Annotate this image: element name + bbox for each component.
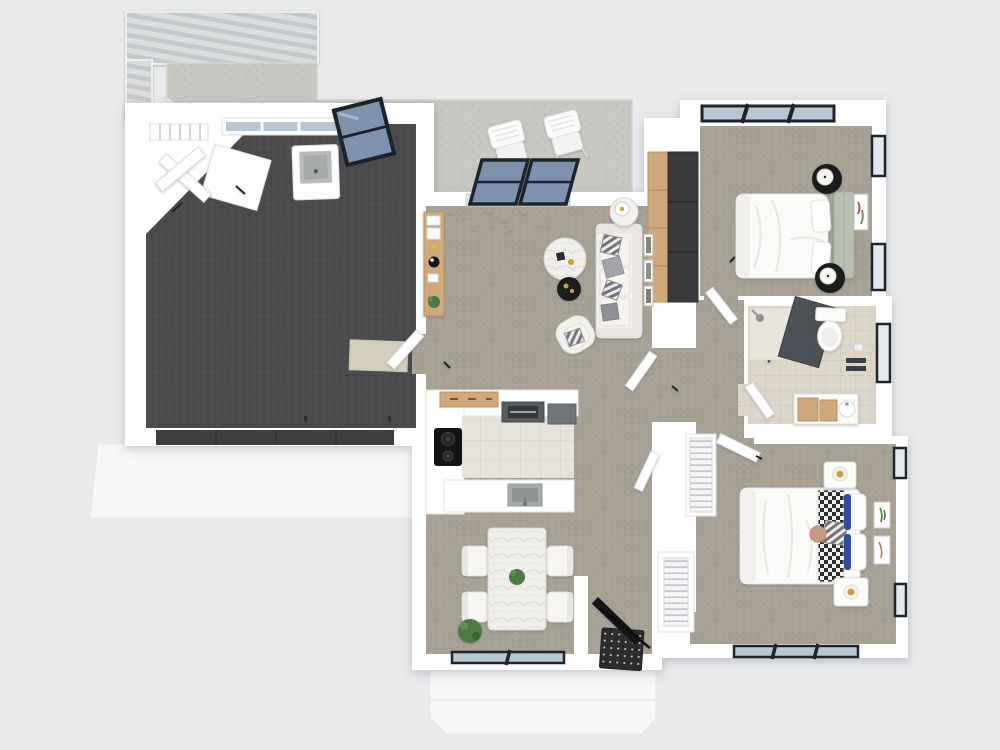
marble-coffee-table	[544, 238, 586, 280]
living-wall-art	[644, 234, 653, 306]
console-black-bowl	[429, 257, 440, 268]
floor-plant	[458, 619, 482, 643]
bed-1-pillow	[811, 199, 831, 232]
side-table-with-lamp	[610, 198, 638, 226]
dining-chair	[546, 592, 573, 622]
nightstand-white	[834, 578, 868, 606]
dining-chair	[462, 592, 489, 622]
driveway	[90, 444, 414, 518]
sofa-pillow	[600, 234, 621, 255]
kitchen	[426, 390, 578, 514]
nightstand-white	[824, 462, 856, 488]
linen-closet	[686, 434, 716, 516]
bedroom-1-wall-art	[854, 194, 868, 230]
garage-door	[156, 430, 394, 445]
floor-plan-svg	[0, 0, 1000, 750]
dining-chair	[462, 546, 489, 576]
entry-closet	[658, 552, 694, 632]
black-accent-table	[557, 277, 581, 301]
laundry-window-band	[222, 118, 340, 135]
console-decor-gold	[430, 244, 437, 249]
sofa-pillow	[601, 303, 619, 321]
nightstand-black	[812, 164, 842, 194]
bedroom-1-window-band	[702, 104, 834, 123]
sliding-glass-door	[466, 160, 578, 206]
kitchen-tile-floor	[462, 416, 574, 478]
coffee-table-book	[555, 251, 566, 262]
dining-chair	[546, 546, 573, 576]
vanity	[794, 394, 858, 424]
round-stool	[810, 526, 826, 542]
dining-table	[488, 528, 546, 630]
sofa-pillow	[602, 256, 624, 278]
floor-plan-render	[0, 0, 1000, 750]
bed-2-pillow-navy	[844, 534, 866, 570]
doormat	[599, 628, 644, 671]
cooktop	[434, 428, 462, 466]
wood-console	[424, 212, 444, 316]
bedroom-2-bottom-window	[734, 644, 858, 659]
utility-sink	[292, 144, 340, 200]
hall-wardrobe	[648, 152, 698, 302]
kitchen-appliance	[548, 404, 576, 424]
bed-2-pillow-navy	[844, 494, 866, 530]
sofa	[596, 224, 642, 338]
toilet-paper-holder	[854, 344, 863, 351]
laundry-grid-window	[150, 124, 208, 140]
bathroom-window	[877, 324, 890, 382]
range-with-hood	[502, 402, 544, 422]
bed-2	[740, 488, 866, 584]
entry-wall-stub	[574, 576, 588, 654]
nightstand-black	[815, 263, 845, 293]
dining-window	[452, 650, 564, 665]
kitchen-sink	[508, 484, 542, 506]
